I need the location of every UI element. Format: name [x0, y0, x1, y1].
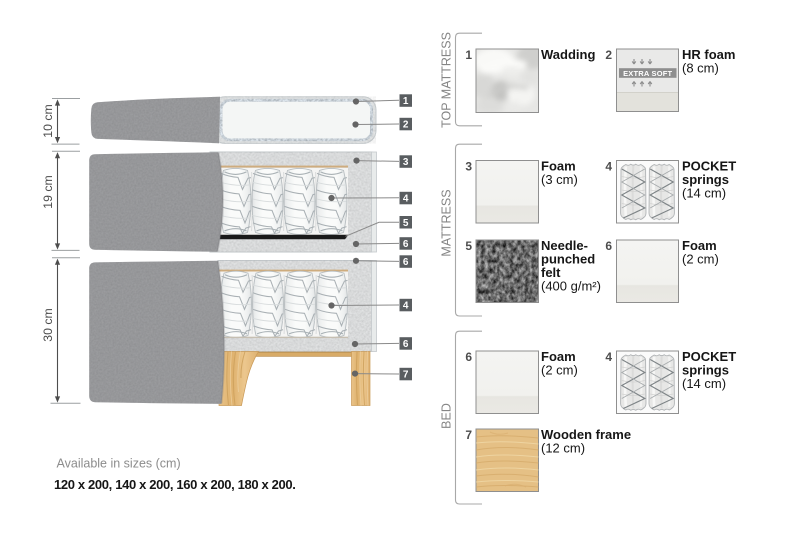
svg-text:(8 cm): (8 cm)	[682, 61, 719, 76]
svg-text:5: 5	[465, 239, 472, 253]
svg-text:4: 4	[403, 194, 409, 205]
svg-text:10 cm: 10 cm	[41, 104, 55, 138]
svg-text:1: 1	[465, 48, 472, 62]
svg-text:(3 cm): (3 cm)	[541, 172, 578, 187]
svg-text:Wadding: Wadding	[541, 47, 595, 62]
svg-text:(400 g/m²): (400 g/m²)	[541, 279, 601, 294]
svg-text:BED: BED	[440, 403, 454, 429]
svg-text:6: 6	[403, 239, 409, 250]
svg-text:6: 6	[403, 257, 409, 268]
svg-text:MATTRESS: MATTRESS	[440, 189, 454, 256]
svg-text:4: 4	[403, 301, 409, 312]
svg-text:TOP MATTRESS: TOP MATTRESS	[440, 32, 454, 128]
svg-text:30 cm: 30 cm	[41, 308, 55, 342]
svg-text:(2 cm): (2 cm)	[541, 363, 578, 378]
svg-text:19 cm: 19 cm	[41, 175, 55, 209]
svg-text:5: 5	[403, 218, 409, 229]
svg-text:7: 7	[403, 370, 409, 381]
svg-text:1: 1	[403, 96, 409, 107]
svg-text:120 x 200, 140 x 200, 160 x 20: 120 x 200, 140 x 200, 160 x 200, 180 x 2…	[54, 477, 296, 492]
svg-text:3: 3	[465, 160, 472, 174]
svg-text:4: 4	[605, 160, 612, 174]
svg-text:(14 cm): (14 cm)	[682, 376, 726, 391]
svg-text:4: 4	[605, 350, 612, 364]
svg-text:6: 6	[605, 239, 612, 253]
svg-text:Available in sizes (cm): Available in sizes (cm)	[57, 457, 181, 471]
svg-text:3: 3	[403, 157, 409, 168]
svg-text:7: 7	[465, 428, 472, 442]
svg-text:(12 cm): (12 cm)	[541, 441, 585, 456]
svg-text:(2 cm): (2 cm)	[682, 252, 719, 267]
svg-text:6: 6	[465, 350, 472, 364]
svg-text:6: 6	[403, 339, 409, 350]
svg-text:(14 cm): (14 cm)	[682, 186, 726, 201]
svg-text:2: 2	[605, 48, 612, 62]
svg-text:EXTRA SOFT: EXTRA SOFT	[623, 69, 672, 78]
svg-text:2: 2	[403, 120, 409, 131]
